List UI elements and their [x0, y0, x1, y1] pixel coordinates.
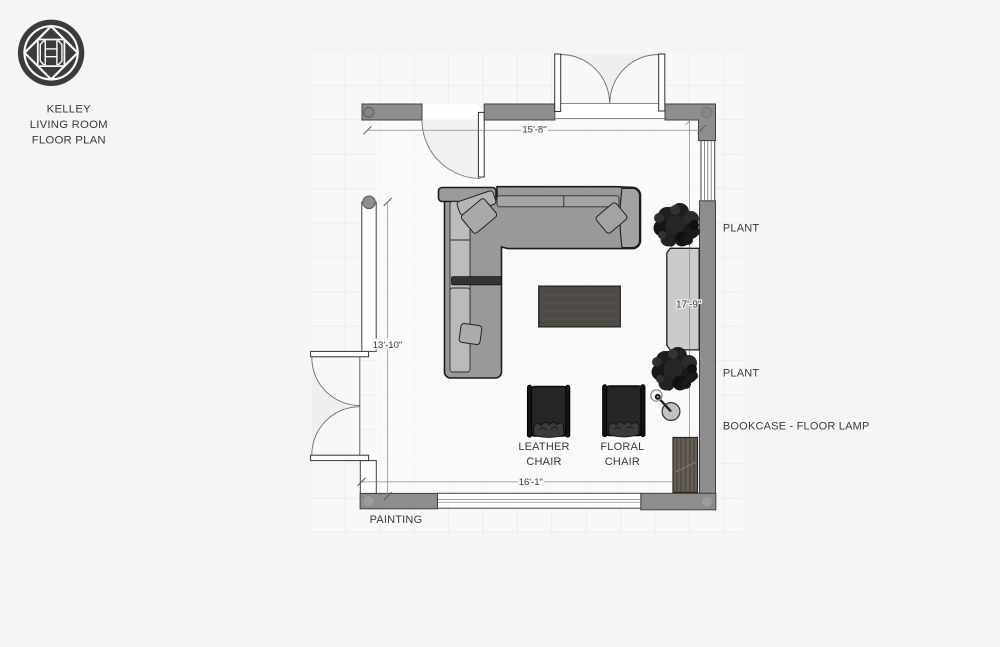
- svg-text:PLANT: PLANT: [723, 367, 760, 379]
- svg-text:PLANT: PLANT: [723, 222, 760, 234]
- svg-text:FLORAL: FLORAL: [600, 441, 644, 453]
- svg-text:17'-9": 17'-9": [676, 300, 702, 311]
- svg-text:FLOOR PLAN: FLOOR PLAN: [32, 134, 106, 146]
- svg-text:15'-8": 15'-8": [522, 125, 546, 136]
- svg-text:KELLEY: KELLEY: [47, 103, 91, 115]
- svg-text:BOOKCASE - FLOOR LAMP: BOOKCASE - FLOOR LAMP: [723, 421, 870, 433]
- svg-text:CHAIR: CHAIR: [526, 456, 561, 468]
- svg-text:LEATHER: LEATHER: [518, 441, 569, 453]
- svg-text:CHAIR: CHAIR: [605, 456, 640, 468]
- svg-text:LIVING ROOM: LIVING ROOM: [30, 119, 108, 131]
- svg-text:13'-10": 13'-10": [373, 340, 402, 351]
- svg-text:16'-1": 16'-1": [519, 477, 543, 488]
- svg-text:PAINTING: PAINTING: [370, 514, 423, 526]
